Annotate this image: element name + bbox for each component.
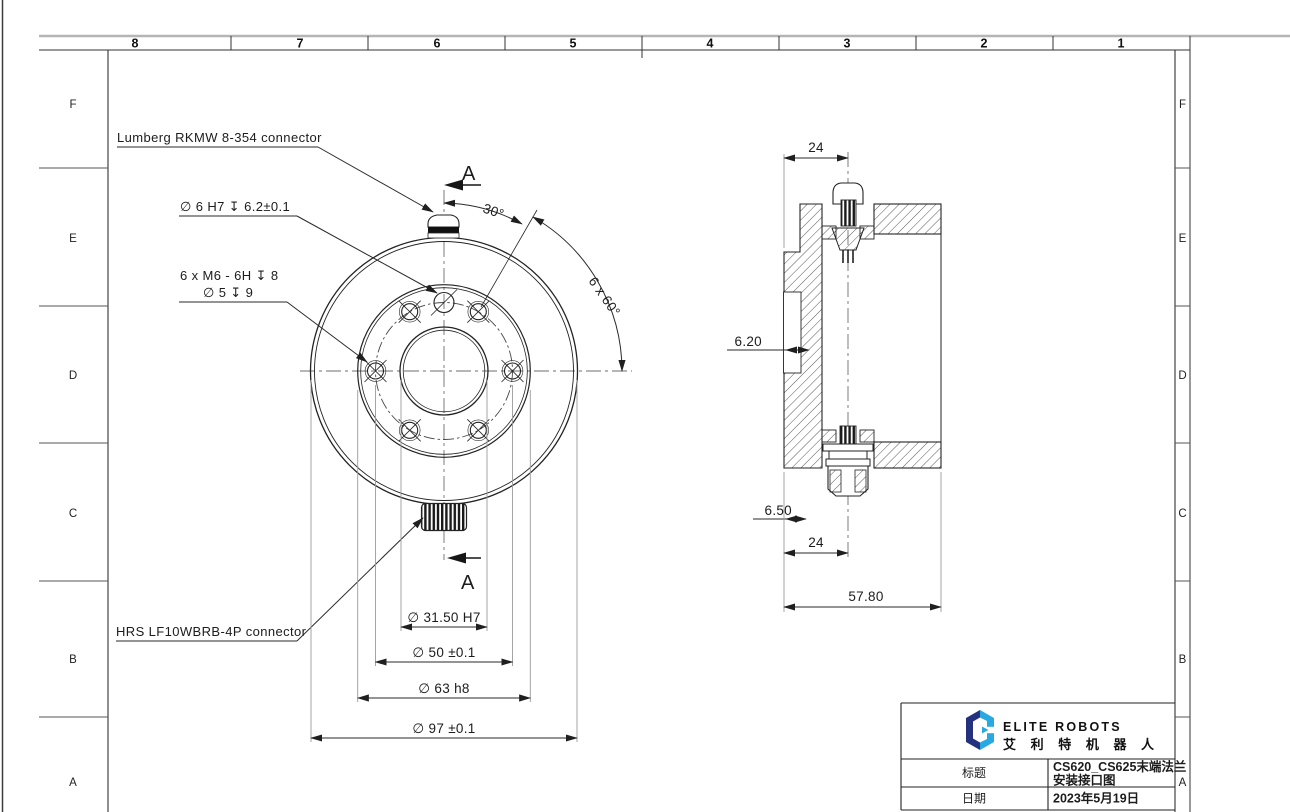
hrs-connector-front [422,504,467,531]
zone-column-labels: 8 7 6 5 4 3 2 1 [132,37,1125,51]
brand-name-cn: 艾 利 特 机 器 人 [1003,737,1160,752]
zone-row-b: B [69,654,77,666]
lumberg-connector-front [428,215,459,238]
zone-row-e: E [69,233,77,245]
angle-dimensions: 30° 6 x 60° [444,201,623,371]
zone-col-5: 5 [570,37,577,51]
m6-hole-90 [502,360,524,382]
zone-row-e-right: E [1179,233,1187,245]
thread-spec-label: 6 x M6 - 6H ↧ 8 [180,268,279,283]
title-value-line2: 安装接口图 [1053,773,1116,788]
housing-bottom-plate [874,442,941,468]
zone-row-b-right: B [1179,654,1187,666]
zone-row-labels-left: F E D C B A [69,99,77,789]
zone-col-4: 4 [707,37,714,51]
angle-30-text: 30° [481,201,506,222]
zone-col-3: 3 [844,37,851,51]
m6-hole-30 [467,301,489,323]
m6-hole-150 [467,419,489,441]
lumberg-label: Lumberg RKMW 8-354 connector [117,130,322,145]
zone-col-1: 1 [1118,37,1125,51]
date-value: 2023年5月19日 [1053,791,1139,806]
dowel-hole-label: ∅ 6 H7 ↧ 6.2±0.1 [180,199,290,214]
dim-bottom-24: 24 [808,535,824,550]
zone-row-d-right: D [1178,370,1186,382]
angle-6x60-text: 6 x 60° [586,274,624,319]
brand-logo [966,710,995,750]
zone-col-6: 6 [434,37,441,51]
section-arrow-bottom: A [447,553,481,595]
title-value-line1: CS620_CS625末端法兰 [1053,759,1187,774]
dim-pilot: ∅ 63 h8 [418,681,469,696]
zone-col-2: 2 [981,37,988,51]
zone-row-labels-right: F E D C B A [1178,99,1186,789]
callout-hrs: HRS LF10WBRB-4P connector [116,518,423,641]
sheet-frame: 8 7 6 5 4 3 2 1 F E D C B A F E D C B A [3,0,1290,812]
hrs-label: HRS LF10WBRB-4P connector [116,624,307,639]
callout-m6-threads: 6 x M6 - 6H ↧ 8 ∅ 5 ↧ 9 [179,268,367,362]
zone-row-c: C [69,508,77,520]
title-block: ELITE ROBOTS 艾 利 特 机 器 人 标题 CS620_CS625末… [901,703,1187,810]
thread-pilot-label: ∅ 5 ↧ 9 [203,285,253,300]
dim-6-20: 6.20 [735,334,762,349]
dim-57-80: 57.80 [848,589,883,604]
zone-row-a: A [69,777,77,789]
flange-face-recess [784,292,802,373]
zone-row-f: F [69,99,76,111]
dim-top-24: 24 [808,140,824,155]
zone-row-a-right: A [1179,777,1187,789]
lumberg-connector-section [832,183,864,263]
zone-row-c-right: C [1178,508,1186,520]
section-arrow-top: A [444,163,481,191]
dim-6-50: 6.50 [765,503,792,518]
zone-col-7: 7 [297,37,304,51]
drawing-page: 8 7 6 5 4 3 2 1 F E D C B A F E D C B A [0,0,1290,812]
brand-name: ELITE ROBOTS [1003,720,1122,734]
zone-col-8: 8 [132,37,139,51]
logo-cube-left [966,710,980,750]
front-view: A A 30° 6 x 60° Lumberg RKMW 8-354 conne… [116,130,632,742]
side-section-view: 24 6.20 6.50 24 57.80 [727,140,941,612]
title-label: 标题 [962,766,986,780]
housing-top-plate [874,204,941,234]
zone-row-d: D [69,370,77,382]
section-label-bottom: A [461,572,475,594]
m6-hole-270 [365,360,387,382]
dowel-pin-hole [431,290,457,316]
zone-column-ticks [231,36,1053,58]
zone-row-f-right: F [1179,99,1186,111]
dim-bore: ∅ 31.50 H7 [407,610,480,625]
section-label-top: A [462,163,476,185]
dim-outer: ∅ 97 ±0.1 [412,721,475,736]
date-label: 日期 [962,792,986,806]
m6-hole-210 [399,419,421,441]
dim-bolt-circle: ∅ 50 ±0.1 [412,645,475,660]
m6-hole-330 [399,301,421,323]
engineering-drawing-canvas: 8 7 6 5 4 3 2 1 F E D C B A F E D C B A [0,0,1290,812]
